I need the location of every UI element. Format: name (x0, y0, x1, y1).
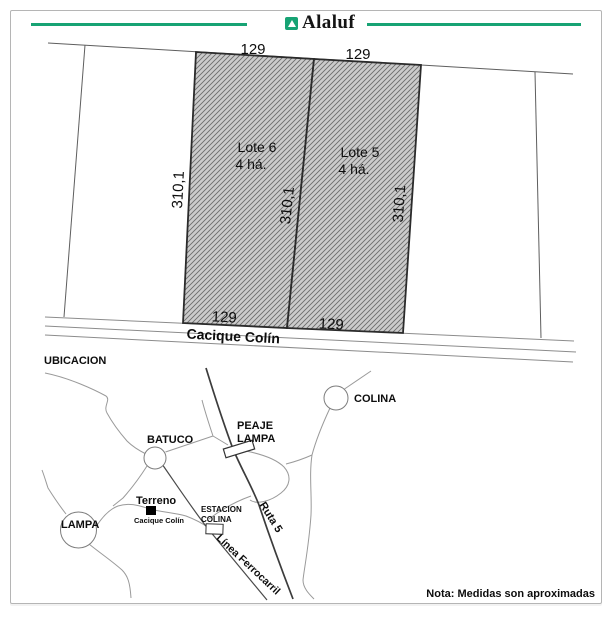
plan-left-neighbor-line (64, 45, 85, 317)
lot5-top-dimension: 129 (345, 46, 370, 63)
road-loop-interchange (234, 449, 289, 502)
colina-label: COLINA (354, 393, 396, 405)
peaje-label-line1: PEAJE (237, 420, 273, 432)
road-to-lampa (42, 470, 66, 514)
lot6-name: Lote 6 (238, 139, 277, 155)
terreno-road-label: Cacique Colín (134, 516, 184, 525)
lot5-area: 4 há. (338, 161, 369, 177)
lot6-bottom-dimension: 129 (211, 308, 237, 326)
site-plan: 129 129 129 129 310,1 310,1 310,1 Lote 6… (45, 41, 576, 362)
lot6-area: 4 há. (235, 156, 266, 172)
batuco-label: BATUCO (147, 434, 194, 446)
batuco-town-circle (144, 447, 166, 469)
measurements-note: Nota: Medidas son aproximadas (426, 588, 595, 600)
lot5-right-depth-dimension: 310,1 (390, 184, 410, 223)
ruta5-label: Ruta 5 (257, 500, 285, 535)
road-south-wavy (303, 455, 314, 599)
road-northwest (45, 373, 146, 454)
colina-town-circle (324, 386, 348, 410)
road-colina-northeast (345, 371, 372, 389)
lampa-label: LAMPA (61, 519, 99, 531)
peaje-label-line2: LAMPA (237, 433, 275, 445)
road-colina-south (312, 408, 330, 455)
lot5-bottom-dimension: 129 (318, 315, 344, 333)
estacion-label-line1: ESTACION (201, 505, 242, 514)
plan-right-neighbor-line (535, 72, 541, 338)
road-south-of-lampa (89, 544, 131, 598)
road-north-junction (202, 400, 213, 436)
terreno-label: Terreno (136, 495, 176, 507)
road-loop-to-colina (286, 455, 312, 464)
plan-and-map-drawing: 129 129 129 129 310,1 310,1 310,1 Lote 6… (0, 0, 612, 618)
lot6-left-depth-dimension: 310,1 (169, 171, 188, 209)
lot6-top-dimension: 129 (240, 41, 265, 58)
lot5-name: Lote 5 (341, 144, 380, 160)
road-junction-to-ruta5 (213, 436, 228, 445)
terreno-marker (146, 506, 156, 515)
map-title: UBICACION (44, 355, 106, 367)
location-map: UBICACION COLINA BATUCO LAMPA PEAJE (42, 355, 396, 600)
estacion-label-line2: COLINA (201, 515, 232, 524)
